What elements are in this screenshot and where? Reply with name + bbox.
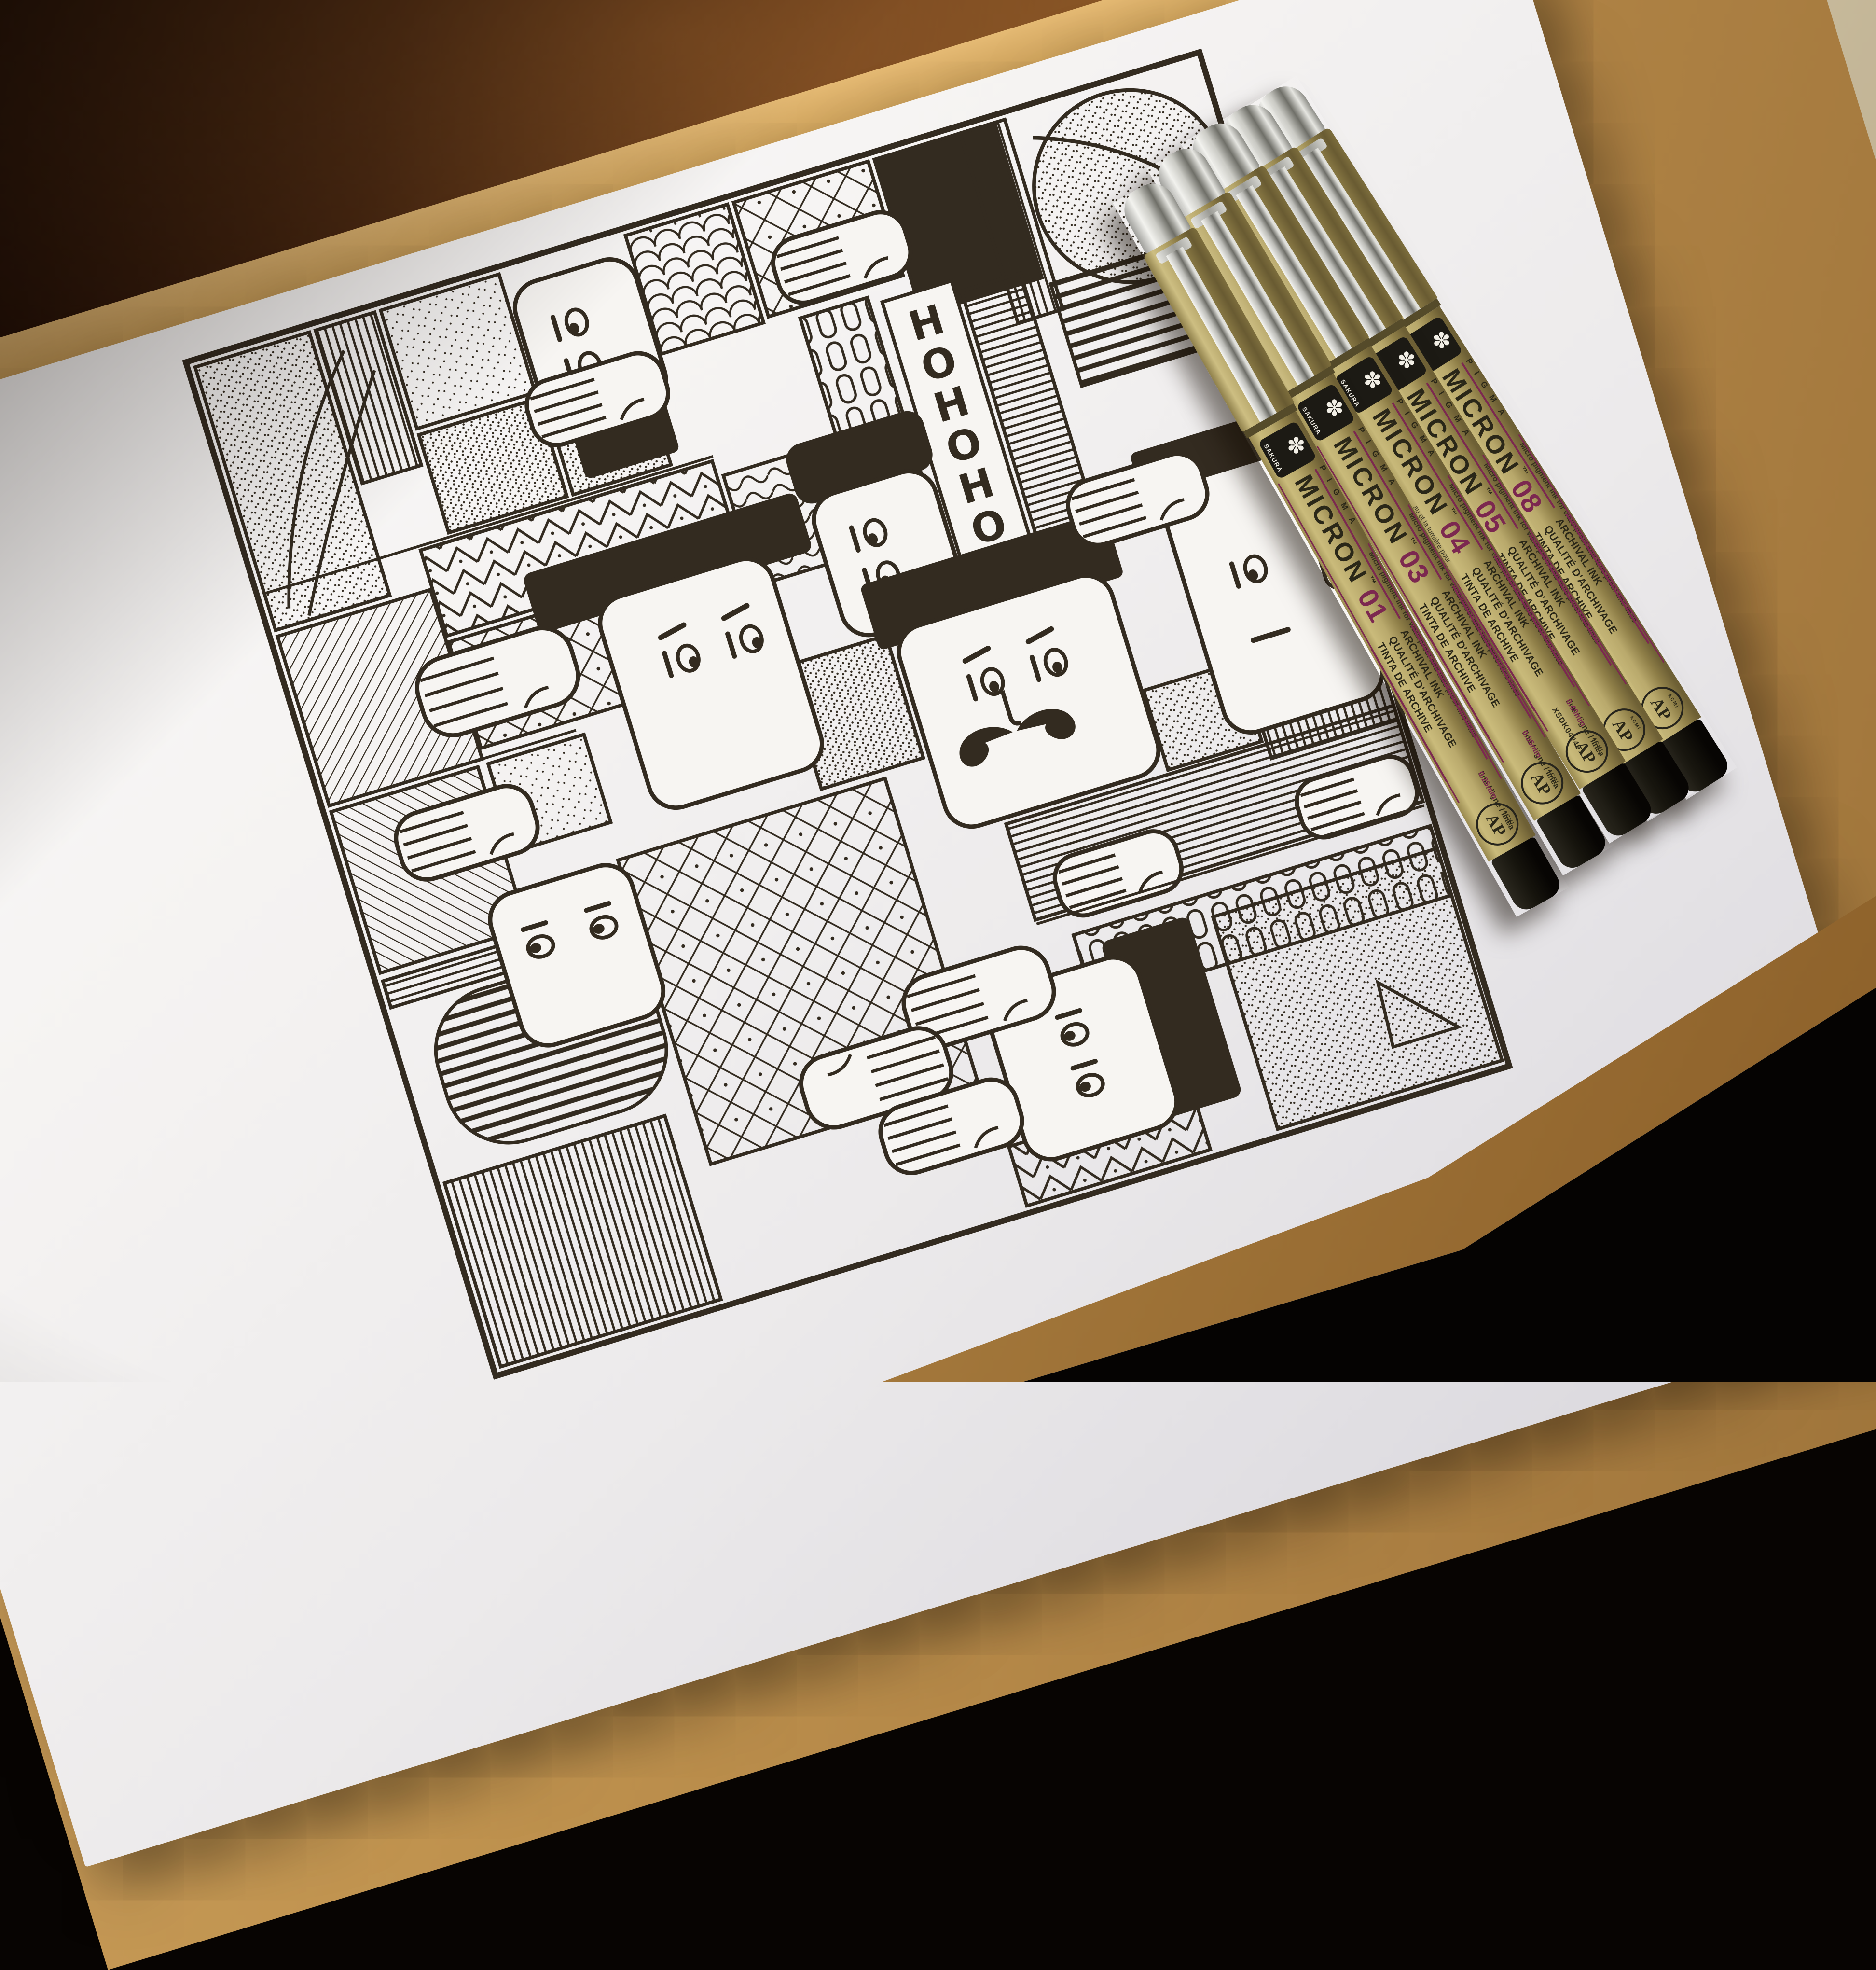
ap-seal: ACMIAP [1468, 795, 1526, 853]
micron-pens-group: ✽SAKURAPIGMAMicro pigment ink for waterp… [0, 0, 1876, 1382]
